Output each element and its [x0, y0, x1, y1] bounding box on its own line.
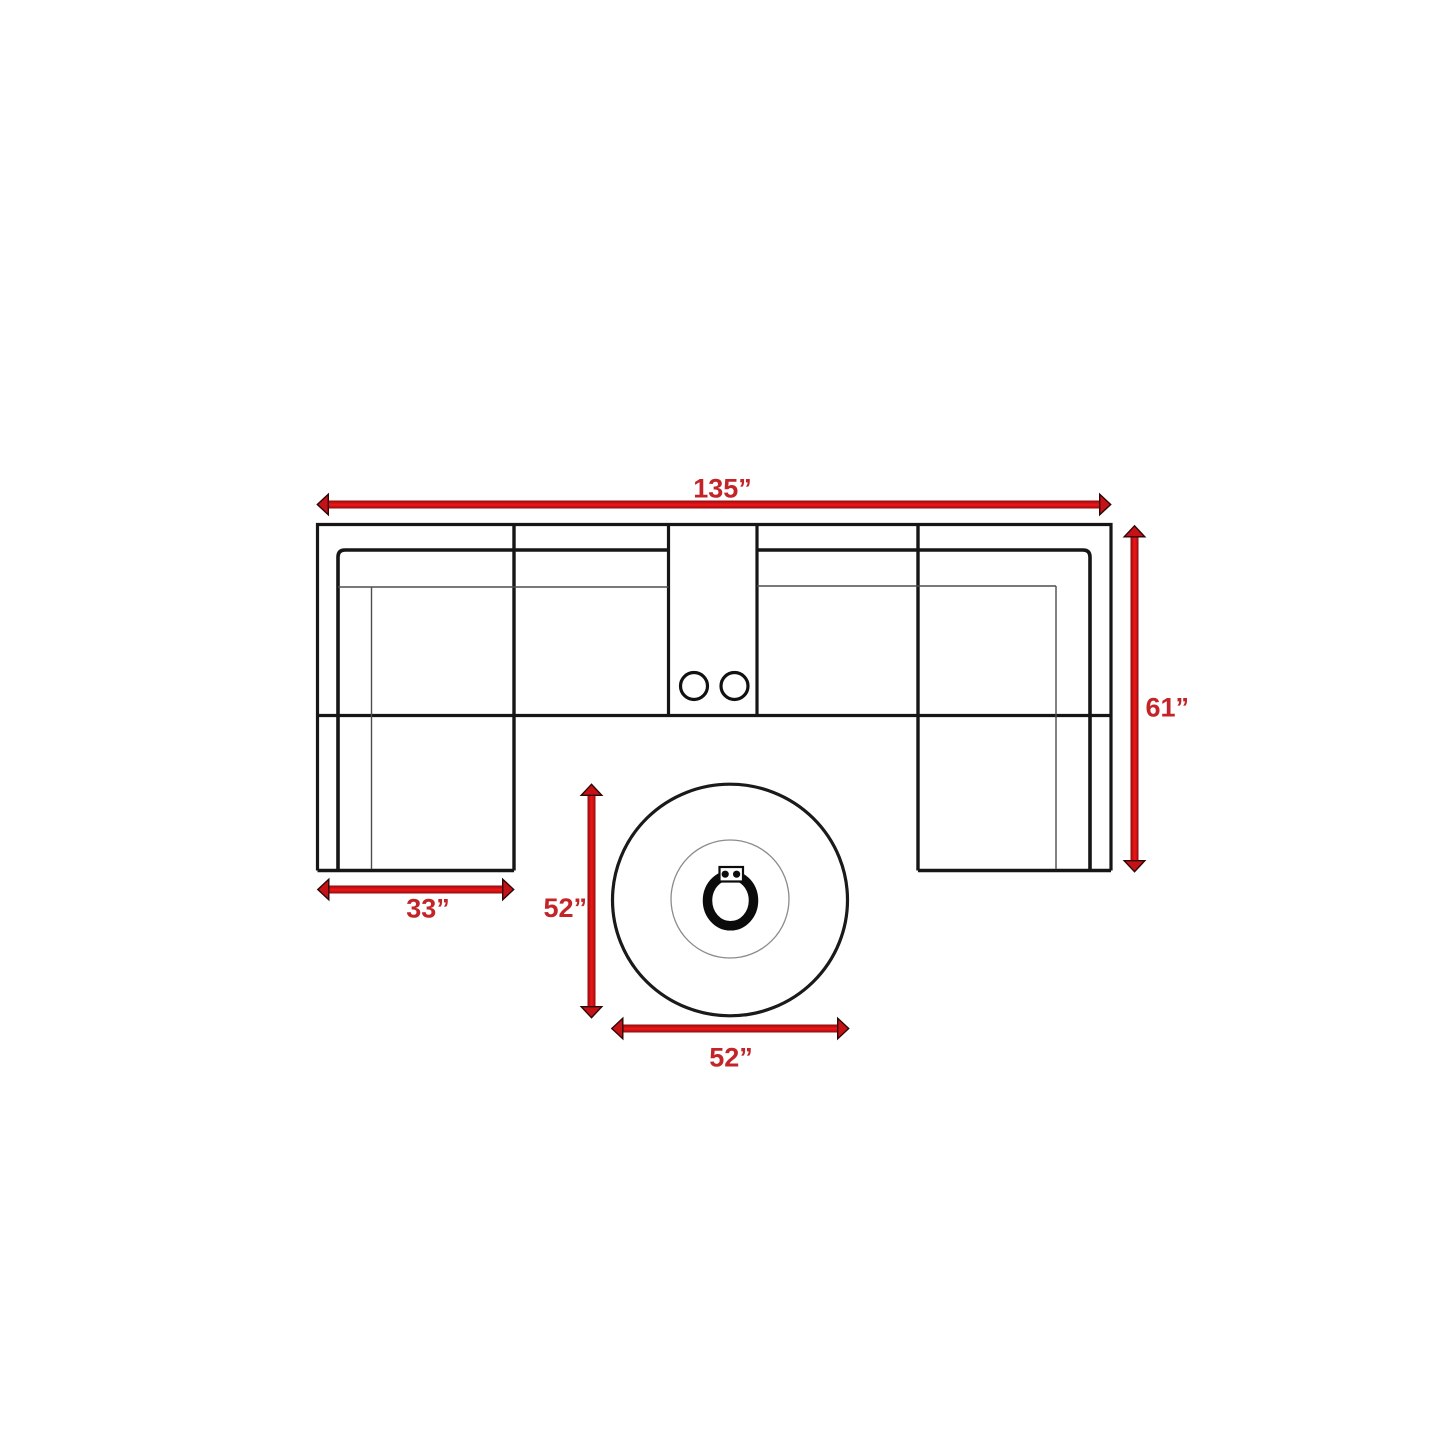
svg-text:52”: 52” [709, 1043, 753, 1073]
svg-text:33”: 33” [406, 894, 450, 924]
svg-text:52”: 52” [543, 893, 587, 923]
svg-text:135”: 135” [693, 474, 752, 504]
svg-text:61”: 61” [1146, 693, 1190, 723]
